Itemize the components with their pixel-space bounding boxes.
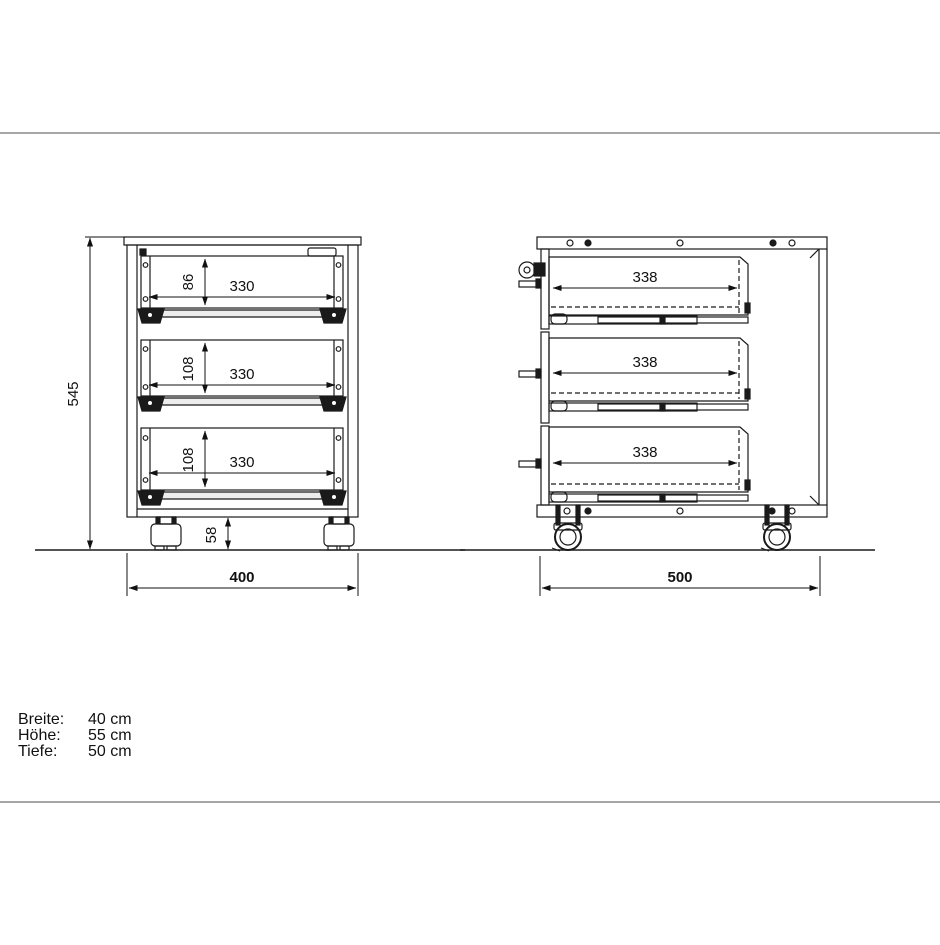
spec-row-tiefe: Tiefe: 50 cm [18, 744, 132, 760]
front-dimensions [85, 237, 358, 596]
side-drawer-1 [549, 257, 750, 324]
side-carcass [537, 237, 827, 517]
spec-list: Breite: 40 cm Höhe: 55 cm Tiefe: 50 cm [18, 712, 132, 760]
dim-label-drawer2-width: 330 [229, 366, 254, 383]
front-top-recess [308, 248, 336, 256]
side-caster-right [761, 505, 791, 551]
spec-value-breite: 40 cm [88, 712, 132, 728]
side-drawer-3 [549, 427, 750, 502]
dim-label-overall-height: 545 [65, 381, 82, 406]
spec-label-tiefe: Tiefe: [18, 744, 88, 760]
front-lock-detail [140, 249, 146, 255]
side-drawer-2 [549, 338, 750, 411]
dim-label-drawer3-width: 330 [229, 454, 254, 471]
dim-label-drawer1-height: 86 [180, 274, 197, 291]
dim-label-side-drawer1-depth: 338 [632, 269, 657, 286]
spec-value-tiefe: 50 cm [88, 744, 132, 760]
dim-label-side-drawer3-depth: 338 [632, 444, 657, 461]
dim-label-drawer2-height: 108 [180, 356, 197, 381]
side-caster-left [552, 505, 582, 551]
front-caster-right [324, 517, 354, 550]
side-lock-cylinder [519, 262, 535, 278]
spec-label-breite: Breite: [18, 712, 88, 728]
spec-value-hoehe: 55 cm [88, 728, 132, 744]
dim-label-drawer1-width: 330 [229, 278, 254, 295]
dim-label-overall-depth: 500 [667, 569, 692, 586]
dim-label-side-drawer2-depth: 338 [632, 354, 657, 371]
side-view [460, 237, 875, 551]
dim-label-drawer3-height: 108 [180, 447, 197, 472]
drawing-canvas: 545 86 330 108 330 108 330 58 400 [0, 0, 940, 940]
front-caster-left [151, 517, 181, 550]
spec-label-hoehe: Höhe: [18, 728, 88, 744]
side-front-panels [519, 249, 549, 505]
spec-row-hoehe: Höhe: 55 cm [18, 728, 132, 744]
dim-label-overall-width: 400 [229, 569, 254, 586]
spec-row-breite: Breite: 40 cm [18, 712, 132, 728]
technical-drawing-page: 545 86 330 108 330 108 330 58 400 [0, 0, 940, 940]
dim-label-caster-height: 58 [203, 527, 220, 544]
